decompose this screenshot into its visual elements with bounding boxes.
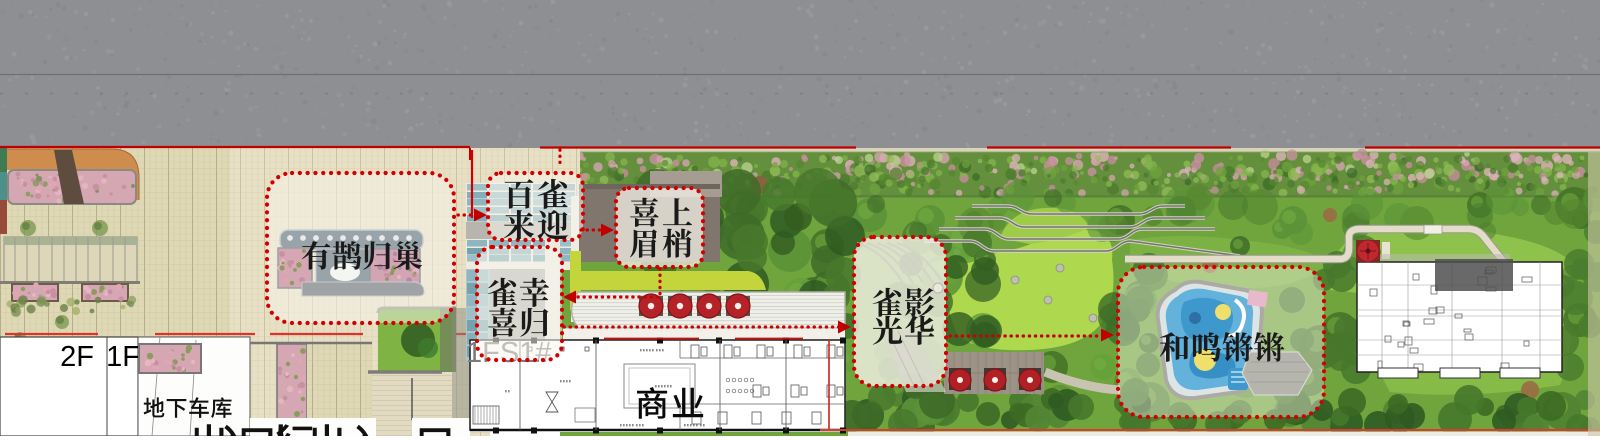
svg-text:2F: 2F bbox=[60, 341, 94, 373]
svg-text:1F: 1F bbox=[106, 341, 140, 373]
